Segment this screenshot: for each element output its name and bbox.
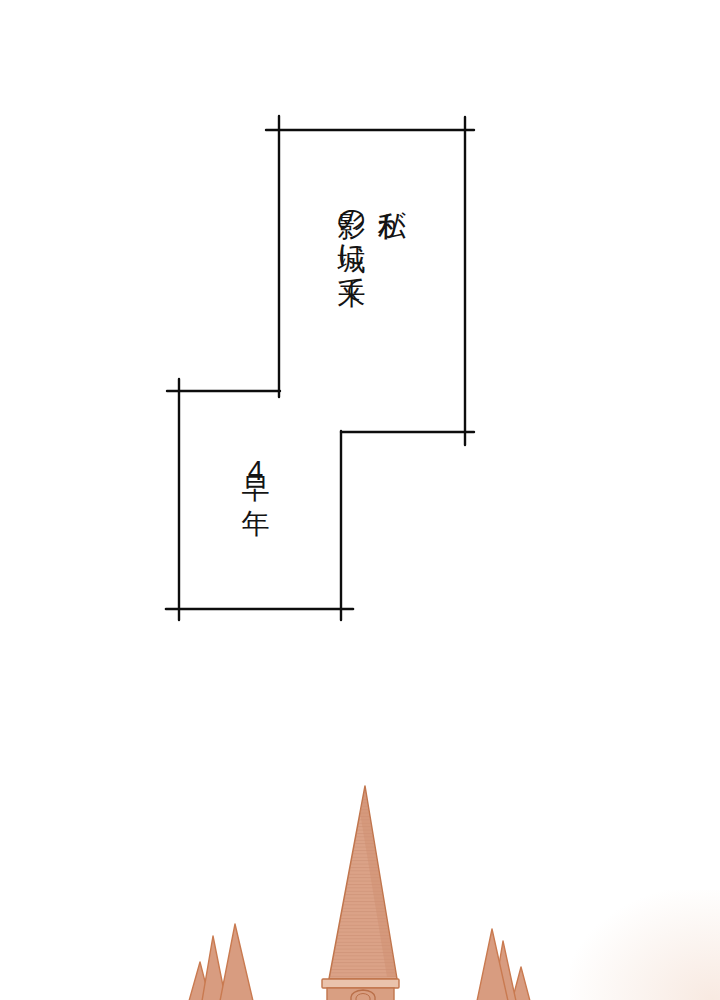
narration-line-1: 私が <box>371 190 411 382</box>
left-spike-tall <box>220 924 253 1000</box>
scene-artwork <box>0 0 720 1000</box>
castle-illustration <box>189 786 530 1000</box>
left-spire-cluster <box>189 924 253 1000</box>
narration-line-2: 影の城に来て <box>331 190 371 382</box>
central-tower <box>322 786 399 1000</box>
narration-text-bottom: 早4年 <box>235 454 275 564</box>
manga-page: 私が 影の城に来て 早4年 <box>0 0 720 1000</box>
narration-line-3: 早4年 <box>235 454 275 564</box>
right-spire-cluster <box>477 929 530 1000</box>
tower-cornice <box>322 979 399 988</box>
narration-text-top: 私が 影の城に来て <box>331 190 411 382</box>
narration-panel-border <box>166 116 474 620</box>
